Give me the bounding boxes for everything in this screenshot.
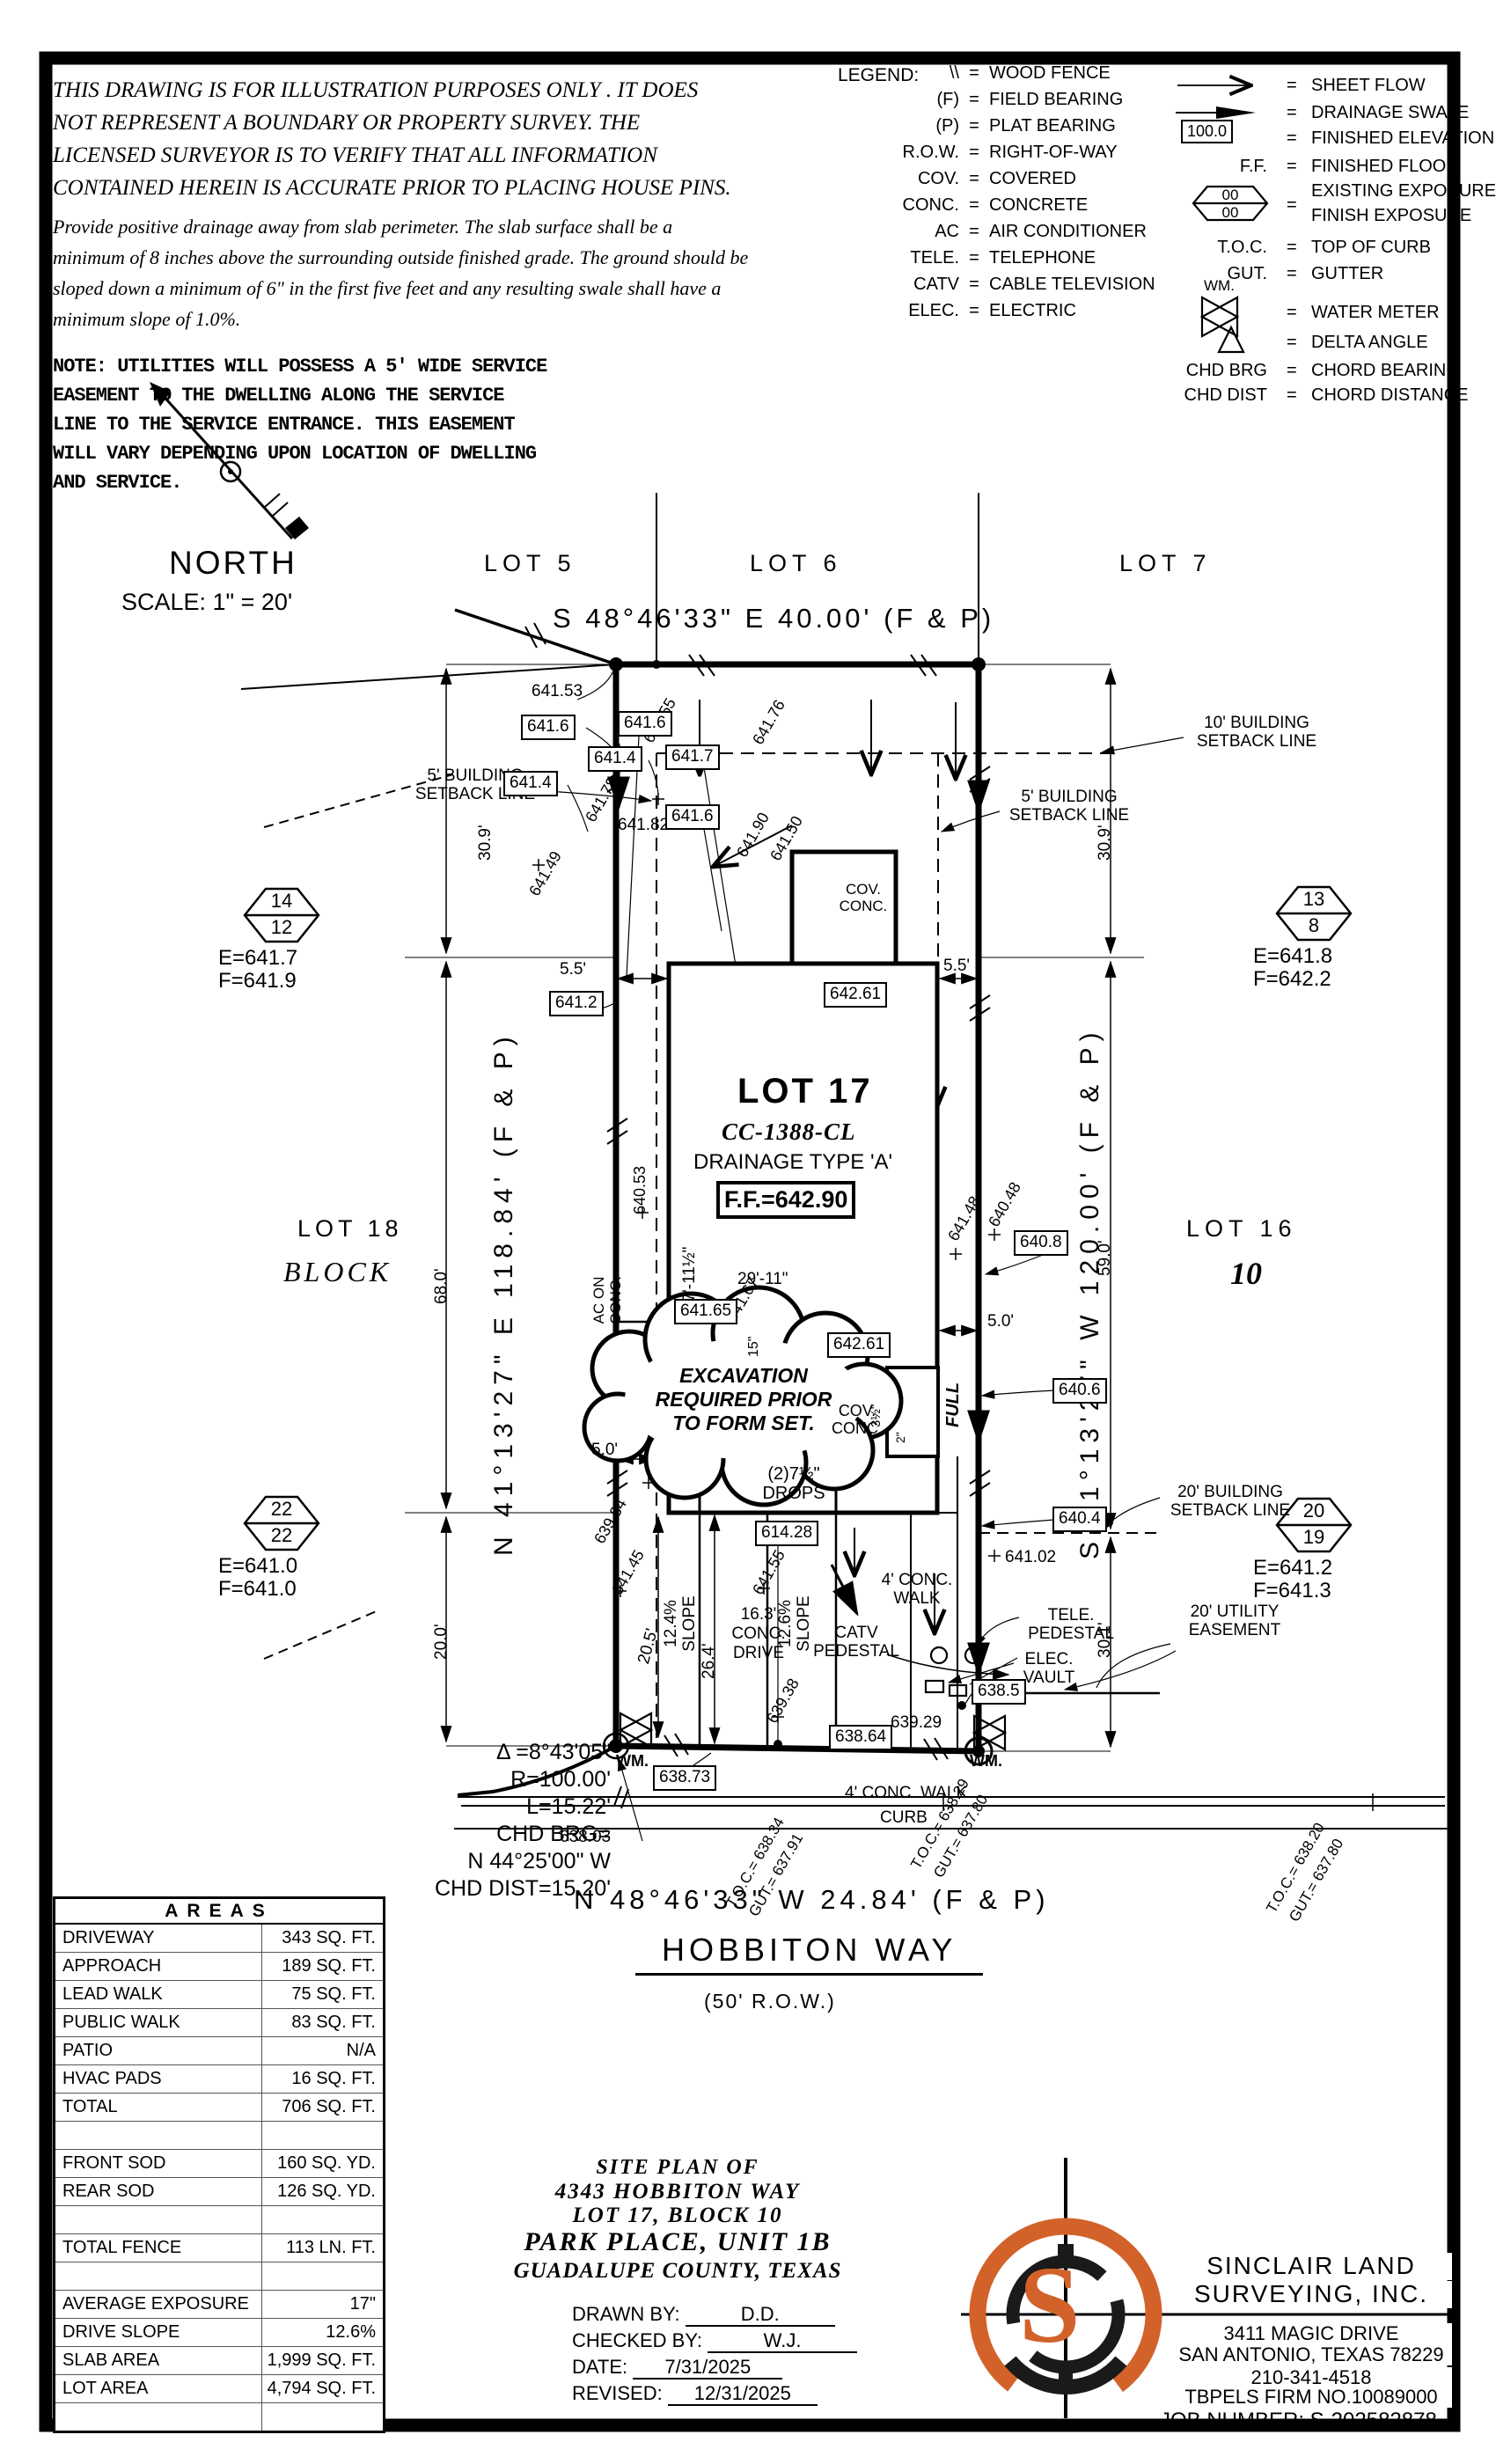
conc-walk-label: 4' CONC. WALK: [864, 1572, 970, 1609]
firm-address-2: SAN ANTONIO, TEXAS 78229: [1170, 2344, 1452, 2365]
marker-14-existing: E=641.7: [218, 947, 297, 970]
row-value: 12.6%: [262, 2319, 383, 2346]
row-label: LEAD WALK: [55, 1981, 262, 2008]
row-label: REAR SOD: [55, 2178, 262, 2205]
utilities-note-line: NOTE: UTILITIES WILL POSSESS A 5' WIDE S…: [53, 352, 546, 381]
legend-sym: (F): [871, 90, 959, 109]
drainage-type-label: DRAINAGE TYPE 'A': [693, 1151, 892, 1174]
row-value: 1,999 SQ. FT.: [262, 2347, 383, 2374]
lot-18-label: LOT 18: [297, 1216, 403, 1243]
full-label: FULL: [943, 1382, 963, 1427]
drops-label: (2)7½" DROPS: [741, 1464, 847, 1503]
marker-14-bottom: 12: [260, 917, 303, 938]
legend-sym: CONC.: [871, 195, 959, 215]
drainage-note: Provide positive drainage away from slab…: [53, 211, 748, 334]
utilities-note-line: AND SERVICE.: [53, 468, 546, 497]
elev-box: 642.61: [827, 1332, 891, 1358]
dim-15: 15": [746, 1337, 762, 1357]
dim-68-0: 68.0': [433, 1268, 451, 1304]
row-value: [262, 2206, 383, 2233]
table-row: TOTAL706 SQ. FT.: [55, 2094, 383, 2122]
elev-box: 641.7: [665, 744, 720, 770]
legend-sym-chd-brg: CHD BRG: [1162, 361, 1267, 380]
marker-20-finish: F=641.3: [1253, 1580, 1331, 1602]
setback-20ft-label: 20' BUILDING SETBACK LINE: [1160, 1484, 1301, 1521]
title-lot-block: LOT 17, BLOCK 10: [484, 2204, 871, 2228]
elev-box: 640.8: [1014, 1230, 1068, 1256]
covered-concrete-label: COV. CONC.: [832, 882, 894, 914]
row-value: 126 SQ. YD.: [262, 2178, 383, 2205]
legend-row: ELEC.=ELECTRIC: [871, 301, 1162, 327]
row-label: [55, 2262, 262, 2290]
legend-eq: =: [1287, 238, 1297, 257]
utilities-note-line: LINE TO THE SERVICE ENTRANCE. THIS EASEM…: [53, 410, 546, 439]
row-label: PUBLIC WALK: [55, 2009, 262, 2036]
drawn-by-value: D.D.: [686, 2304, 835, 2327]
legend-eq: =: [959, 116, 989, 136]
dim-20-0: 20.0': [433, 1624, 451, 1660]
water-meter-icon: [620, 1713, 651, 1747]
marker-14-finish: F=641.9: [218, 970, 297, 993]
dim-59-0: 59.0': [1096, 1240, 1115, 1276]
row-label: PATIO: [55, 2037, 262, 2064]
legend-sym: CATV: [871, 275, 959, 294]
water-meter-label: WM.: [616, 1753, 649, 1771]
elev-box: 641.4: [588, 746, 642, 772]
elev-box: 641.6: [618, 711, 672, 737]
bearing-east-line: S 41°13'27" W 120.00' (F & P): [1075, 1026, 1104, 1559]
table-row: LOT AREA4,794 SQ. FT.: [55, 2375, 383, 2403]
table-row: [55, 2206, 383, 2234]
legend-label: CABLE TELEVISION: [989, 275, 1155, 294]
row-value: 83 SQ. FT.: [262, 2009, 383, 2036]
curve-radius: R=100.00': [398, 1766, 611, 1793]
lot-5-label: LOT 5: [484, 551, 576, 577]
row-label: LOT AREA: [55, 2375, 262, 2402]
dim-30-9: 30.9': [1096, 825, 1115, 861]
legend-eq: =: [959, 248, 989, 268]
row-value: 706 SQ. FT.: [262, 2094, 383, 2121]
marker-20-top: 20: [1293, 1500, 1335, 1522]
setback-5ft-right-label: 5' BUILDING SETBACK LINE: [1003, 788, 1135, 825]
legend-sym-ff: F.F.: [1179, 157, 1267, 176]
curve-delta: Δ =8°43'05": [398, 1739, 611, 1766]
firm-number: TBPELS FIRM NO.10089000: [1170, 2387, 1452, 2408]
elev-box: 638.73: [653, 1765, 716, 1791]
legend-eq: =: [1287, 128, 1297, 148]
spot-elev: 640.53: [632, 1166, 649, 1214]
row-label: SLAB AREA: [55, 2347, 262, 2374]
lot-6-label: LOT 6: [750, 551, 842, 577]
row-value: 343 SQ. FT.: [262, 1925, 383, 1952]
marker-13-existing: E=641.8: [1253, 945, 1332, 968]
table-row: REAR SOD126 SQ. YD.: [55, 2178, 383, 2206]
legend-eq: =: [1287, 333, 1297, 352]
utilities-note: NOTE: UTILITIES WILL POSSESS A 5' WIDE S…: [53, 352, 546, 497]
catv-pedestal-icon: [931, 1647, 947, 1663]
legend-sym: AC: [871, 222, 959, 241]
legend-eq: =: [1287, 195, 1297, 215]
revised-row: REVISED: 12/31/2025: [572, 2383, 818, 2406]
table-row: [55, 2403, 383, 2431]
legend-finished-elevation-box: 100.0: [1181, 120, 1233, 143]
excavation-line: EXCAVATION: [629, 1364, 858, 1388]
title-address: 4343 HOBBITON WAY: [484, 2180, 871, 2204]
row-label: FRONT SOD: [55, 2150, 262, 2177]
curve-length: L=15.22': [398, 1793, 611, 1821]
title-county: GUADALUPE COUNTY, TEXAS: [484, 2259, 871, 2284]
elev-box: 641.65: [674, 1299, 737, 1324]
legend-row: CATV=CABLE TELEVISION: [871, 275, 1162, 301]
date-value: 7/31/2025: [633, 2357, 782, 2380]
disclaimer-line: NOT REPRESENT A BOUNDARY OR PROPERTY SUR…: [53, 106, 731, 139]
marker-22-existing: E=641.0: [218, 1555, 297, 1578]
legend-label: ELECTRIC: [989, 301, 1076, 320]
row-label: TOTAL: [55, 2094, 262, 2121]
legend-row: (F)=FIELD BEARING: [871, 90, 1162, 116]
drawn-by-label: DRAWN BY:: [572, 2303, 680, 2325]
job-number: JOB NUMBER: S-202582878: [1160, 2409, 1437, 2432]
marker-14-top: 14: [260, 891, 303, 912]
marker-20-existing: E=641.2: [1253, 1557, 1332, 1580]
block-label: BLOCK: [283, 1257, 392, 1287]
firm-address-1: 3411 MAGIC DRIVE: [1170, 2323, 1452, 2344]
bearing-south-line: N 48°46'33" W 24.84' (F & P): [574, 1885, 1050, 1915]
spot-elev: 641.82: [618, 817, 669, 835]
legend-hex-bottom: 00: [1209, 205, 1251, 222]
utilities-note-line: WILL VARY DEPENDING UPON LOCATION OF DWE…: [53, 439, 546, 468]
checked-by-value: W.J.: [708, 2330, 857, 2353]
table-row: HVAC PADS16 SQ. FT.: [55, 2065, 383, 2094]
spot-elev: 641.02: [1005, 1549, 1056, 1567]
row-value: 17": [262, 2291, 383, 2318]
row-value: 4,794 SQ. FT.: [262, 2375, 383, 2402]
legend-eq: =: [959, 222, 989, 241]
legend-label: PLAT BEARING: [989, 116, 1116, 136]
legend-eq: =: [1287, 361, 1297, 380]
legend-eq: =: [1287, 303, 1297, 322]
table-row: [55, 2122, 383, 2150]
legend-label-delta-angle: DELTA ANGLE: [1311, 333, 1428, 352]
legend-label-water-meter: WATER METER: [1311, 303, 1440, 322]
legend-sym: ELEC.: [871, 301, 959, 320]
bearing-north-line: S 48°46'33" E 40.00' (F & P): [553, 604, 994, 634]
ac-on-conc-label: AC ON CONC.: [591, 1267, 624, 1333]
drainage-note-line: minimum of 8 inches above the surroundin…: [53, 242, 748, 273]
legend-row: AC=AIR CONDITIONER: [871, 222, 1162, 248]
date-row: DATE: 7/31/2025: [572, 2357, 782, 2380]
row-value: [262, 2403, 383, 2431]
legend-label: WOOD FENCE: [989, 63, 1111, 83]
row-label: HVAC PADS: [55, 2065, 262, 2093]
legend-label-finish-exposure: FINISH EXPOSURE: [1311, 206, 1471, 225]
elev-box: 614.28: [755, 1521, 818, 1546]
legend-label: RIGHT-OF-WAY: [989, 143, 1118, 162]
table-row: TOTAL FENCE113 LN. FT.: [55, 2234, 383, 2262]
legend-label: CONCRETE: [989, 195, 1088, 215]
legend-eq: =: [959, 169, 989, 188]
legend-row: COV.=COVERED: [871, 169, 1162, 195]
table-row: LEAD WALK75 SQ. FT.: [55, 1981, 383, 2009]
row-value: 16 SQ. FT.: [262, 2065, 383, 2093]
curb-label: CURB: [880, 1809, 928, 1828]
table-row: PATION/A: [55, 2037, 383, 2065]
street-name: HOBBITON WAY: [635, 1932, 983, 1976]
legend-row: CONC.=CONCRETE: [871, 195, 1162, 222]
elec-vault-icon: [926, 1681, 943, 1692]
legend-eq: =: [959, 275, 989, 294]
legend-sym: R.O.W.: [871, 143, 959, 162]
elev-box: 640.6: [1052, 1378, 1107, 1404]
legend-label-chord-bearing: CHORD BEARING: [1311, 361, 1460, 380]
utility-symbols: [620, 1647, 1005, 1749]
tele-pedestal-label: TELE. PEDESTAL: [1023, 1607, 1119, 1644]
firm-logo-letter: S: [1019, 2246, 1081, 2367]
row-label: TOTAL FENCE: [55, 2234, 262, 2262]
curve-chd-brg-label: CHD BRG=: [398, 1821, 611, 1848]
marker-13-finish: F=642.2: [1253, 968, 1331, 991]
lot-17-label: LOT 17: [737, 1072, 873, 1111]
legend-eq: =: [1287, 157, 1297, 176]
table-row: PUBLIC WALK83 SQ. FT.: [55, 2009, 383, 2037]
legend-label-top-of-curb: TOP OF CURB: [1311, 238, 1431, 257]
row-value: 189 SQ. FT.: [262, 1953, 383, 1980]
checked-by-label: CHECKED BY:: [572, 2329, 702, 2351]
dim-29-11: 29'-11": [737, 1271, 788, 1289]
legend-sym: COV.: [871, 169, 959, 188]
marker-22-bottom: 22: [260, 1525, 303, 1546]
marker-22-top: 22: [260, 1499, 303, 1520]
legend-row: \\=WOOD FENCE: [871, 63, 1162, 90]
finished-floor-box: F.F.=642.90: [716, 1181, 855, 1219]
legend-sym-chd-dist: CHD DIST: [1162, 385, 1267, 405]
table-row: DRIVEWAY343 SQ. FT.: [55, 1925, 383, 1953]
dim-5-0: 5.0': [591, 1441, 618, 1460]
dim-5-0: 5.0': [987, 1313, 1014, 1331]
marker-22-finish: F=641.0: [218, 1578, 297, 1601]
legend-eq: =: [1287, 264, 1297, 283]
row-value: [262, 2122, 383, 2149]
marker-13-bottom: 8: [1293, 915, 1335, 936]
marker-20-bottom: 19: [1293, 1527, 1335, 1548]
elev-box: 638.5: [972, 1679, 1026, 1705]
street-row: (50' R.O.W.): [704, 1991, 836, 2013]
legend-label-existing-exposure: EXISTING EXPOSURE: [1311, 181, 1496, 201]
revised-value: 12/31/2025: [668, 2383, 818, 2406]
utilities-note-line: EASEMENT TO THE DWELLING ALONG THE SERVI…: [53, 381, 546, 410]
table-row: [55, 2262, 383, 2291]
revised-label: REVISED:: [572, 2382, 663, 2404]
legend-label: TELEPHONE: [989, 248, 1096, 268]
table-row: SLAB AREA1,999 SQ. FT.: [55, 2347, 383, 2375]
marker-13-top: 13: [1293, 889, 1335, 910]
legend-label: COVERED: [989, 169, 1076, 188]
legend-sym: TELE.: [871, 248, 959, 268]
lot-7-label: LOT 7: [1119, 551, 1212, 577]
areas-table: AREAS DRIVEWAY343 SQ. FT. APPROACH189 SQ…: [53, 1896, 385, 2433]
bearing-west-line: N 41°13'27" E 118.84' (F & P): [489, 1030, 518, 1556]
elev-box: 640.4: [1052, 1507, 1107, 1532]
legend-row: R.O.W.=RIGHT-OF-WAY: [871, 143, 1162, 169]
legend-sym-toc: T.O.C.: [1179, 238, 1267, 257]
setback-10ft-label: 10' BUILDING SETBACK LINE: [1186, 715, 1327, 752]
table-row: AVERAGE EXPOSURE17": [55, 2291, 383, 2319]
block-number: 10: [1230, 1257, 1262, 1292]
disclaimer-paragraph-1: THIS DRAWING IS FOR ILLUSTRATION PURPOSE…: [53, 74, 731, 204]
legend-sym: (P): [871, 116, 959, 136]
scale-label: SCALE: 1" = 20': [121, 590, 292, 616]
elev-box: 642.61: [824, 982, 887, 1008]
row-value: 113 LN. FT.: [262, 2234, 383, 2262]
legend-row: TELE.=TELEPHONE: [871, 248, 1162, 275]
legend-eq: =: [959, 90, 989, 109]
legend-left-column: \\=WOOD FENCE (F)=FIELD BEARING (P)=PLAT…: [871, 63, 1162, 327]
elev-box: 641.4: [503, 771, 558, 796]
curve-data-block: Δ =8°43'05" R=100.00' L=15.22' CHD BRG= …: [398, 1739, 611, 1903]
legend-label-sheet-flow: SHEET FLOW: [1311, 76, 1426, 95]
utility-easement-label: 20' UTILITY EASEMENT: [1169, 1603, 1301, 1640]
dim-30-9: 30.9': [477, 825, 495, 861]
legend-eq: =: [959, 63, 989, 83]
legend-row: (P)=PLAT BEARING: [871, 116, 1162, 143]
title-site-plan-of: SITE PLAN OF: [484, 2156, 871, 2179]
dim-3-5: 3½": [869, 1404, 884, 1427]
row-label: AVERAGE EXPOSURE: [55, 2291, 262, 2318]
dim-26-4: 26.4': [700, 1643, 719, 1679]
legend-label: FIELD BEARING: [989, 90, 1123, 109]
water-meter-label: WM.: [970, 1753, 1002, 1771]
legend-sym-wm: WM.: [1204, 278, 1235, 295]
date-label: DATE:: [572, 2356, 627, 2378]
row-label: APPROACH: [55, 1953, 262, 1980]
spot-elev: 639.29: [891, 1714, 942, 1733]
disclaimer-line: THIS DRAWING IS FOR ILLUSTRATION PURPOSE…: [53, 74, 731, 106]
legend-eq: =: [1287, 385, 1297, 405]
slope-12-4: 12.4% SLOPE: [662, 1589, 699, 1658]
firm-name-1: SINCLAIR LAND: [1170, 2253, 1452, 2280]
drainage-note-line: Provide positive drainage away from slab…: [53, 211, 748, 242]
legend-eq: =: [959, 195, 989, 215]
row-label: [55, 2122, 262, 2149]
legend-label-chord-distance: CHORD DISTANCE: [1311, 385, 1469, 405]
elev-box: 641.6: [665, 804, 720, 830]
dim-5-5: 5.5': [560, 961, 586, 979]
drawn-by-row: DRAWN BY: D.D.: [572, 2304, 835, 2327]
plan-number: CC-1388-CL: [722, 1119, 856, 1146]
lot-16-label: LOT 16: [1186, 1216, 1297, 1243]
disclaimer-line: LICENSED SURVEYOR IS TO VERIFY THAT ALL …: [53, 139, 731, 172]
legend-label-finished-elevation: FINISHED ELEVATION: [1311, 128, 1494, 148]
legend-eq: =: [959, 143, 989, 162]
dim-2: 2": [894, 1432, 907, 1443]
catv-pedestal-label: CATV PEDESTAL: [808, 1624, 905, 1661]
table-row: DRIVE SLOPE12.6%: [55, 2319, 383, 2347]
drainage-note-line: sloped down a minimum of 6" in the first…: [53, 273, 748, 304]
legend-label-drainage-swale: DRAINAGE SWALE: [1311, 103, 1469, 122]
legend-label-gutter: GUTTER: [1311, 264, 1383, 283]
row-label: DRIVEWAY: [55, 1925, 262, 1952]
north-label: NORTH: [169, 546, 297, 582]
legend-label: AIR CONDITIONER: [989, 222, 1147, 241]
row-value: 75 SQ. FT.: [262, 1981, 383, 2008]
elev-box: 641.6: [521, 715, 576, 740]
legend-eq: =: [959, 301, 989, 320]
row-value: N/A: [262, 2037, 383, 2064]
row-value: [262, 2262, 383, 2290]
disclaimer-line: CONTAINED HEREIN IS ACCURATE PRIOR TO PL…: [53, 172, 731, 204]
legend-label-finished-floor: FINISHED FLOOR: [1311, 157, 1459, 176]
legend-hex-top: 00: [1209, 187, 1251, 204]
elev-box: 641.2: [549, 991, 604, 1016]
spot-elev: 641.53: [532, 683, 583, 701]
row-label: DRIVE SLOPE: [55, 2319, 262, 2346]
firm-name-2: SURVEYING, INC.: [1170, 2281, 1452, 2308]
table-row: FRONT SOD160 SQ. YD.: [55, 2150, 383, 2178]
site-plan-sheet: THIS DRAWING IS FOR ILLUSTRATION PURPOSE…: [0, 0, 1496, 2464]
legend-eq: =: [1287, 76, 1297, 95]
row-label: [55, 2206, 262, 2233]
elev-box: 638.64: [829, 1725, 892, 1750]
legend-eq: =: [1287, 103, 1297, 122]
areas-table-title: AREAS: [55, 1899, 383, 1925]
title-subdivision: PARK PLACE, UNIT 1B: [484, 2227, 871, 2256]
checked-by-row: CHECKED BY: W.J.: [572, 2330, 857, 2353]
drainage-note-line: minimum slope of 1.0%.: [53, 304, 748, 334]
row-label: [55, 2403, 262, 2431]
dim-5-5: 5.5': [943, 957, 970, 976]
legend-sym: \\: [871, 63, 959, 83]
table-row: APPROACH189 SQ. FT.: [55, 1953, 383, 1981]
row-value: 160 SQ. YD.: [262, 2150, 383, 2177]
curve-chd-brg: N 44°25'00" W: [398, 1848, 611, 1875]
